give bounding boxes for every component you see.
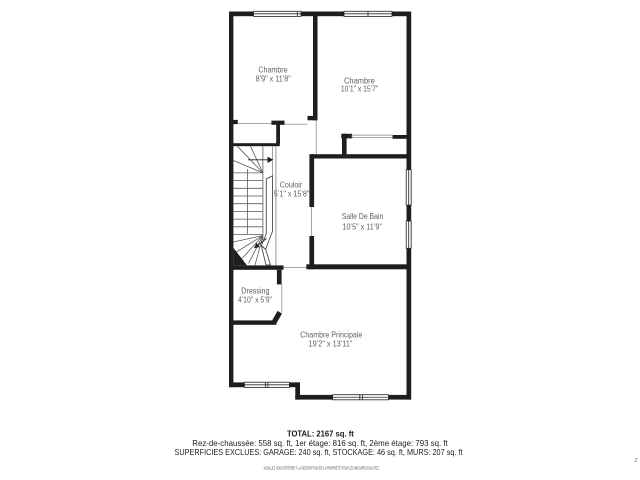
svg-text:8’9" x 11’8": 8’9" x 11’8" — [256, 74, 291, 83]
svg-text:Chambre: Chambre — [258, 65, 288, 74]
svg-text:Dressing: Dressing — [241, 287, 270, 296]
svg-text:TOTAL: 2167 sq. ft: TOTAL: 2167 sq. ft — [287, 429, 354, 439]
svg-text:10’5" x 11’9": 10’5" x 11’9" — [343, 222, 383, 231]
svg-text:4’10" x 5’9": 4’10" x 5’9" — [238, 295, 272, 304]
svg-text:Couloir: Couloir — [280, 180, 303, 189]
svg-text:19’2" x 13’11": 19’2" x 13’11" — [309, 339, 353, 348]
svg-text:SUPERFICIES EXCLUES: GARAGE: 2: SUPERFICIES EXCLUES: GARAGE: 240 sq. ft,… — [175, 447, 464, 457]
svg-text:z: z — [633, 457, 638, 464]
svg-text:VEUILLEZ VOUS RÉFÉRER À LA DES: VEUILLEZ VOUS RÉFÉRER À LA DESCRIPTION D… — [264, 466, 380, 471]
svg-text:5’1" x 15’8": 5’1" x 15’8" — [274, 190, 310, 199]
svg-text:Salle De Bain: Salle De Bain — [342, 212, 384, 221]
svg-text:10’1" x 15’7": 10’1" x 15’7" — [341, 84, 379, 93]
svg-text:Chambre Principale: Chambre Principale — [300, 331, 362, 340]
